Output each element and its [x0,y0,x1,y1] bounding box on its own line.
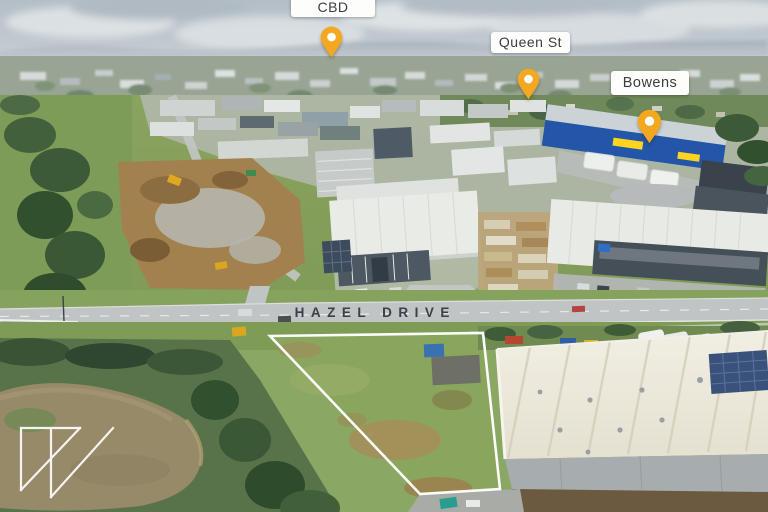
location-pin-icon [637,107,662,146]
label-warragul-line2: CBD [291,0,375,15]
car [572,306,585,312]
left-fields-trees [0,95,132,317]
location-pin-icon [320,24,343,60]
label-warragul-cbd: Warragul CBD [291,0,375,17]
street-name-overlay: HAZEL DRIVE [288,305,456,320]
shipping-container [424,344,444,358]
label-queen-st: Queen St [491,32,570,53]
timber-yard [478,212,558,300]
dirt-strip [512,489,768,512]
agency-logo-watermark [12,424,116,500]
center-warehouse-complex [318,177,483,300]
label-bowens: Bowens [611,71,689,95]
location-pin-icon [517,65,540,103]
car [238,309,252,316]
aerial-photo: Warragul CBD Queen St Bowens HAZEL DRIVE [0,0,768,512]
cargo [505,336,523,344]
concrete-apron [505,454,768,492]
gravel-pad [431,355,480,385]
solar-panels [322,239,352,273]
excavator [232,326,247,336]
light-pole [63,296,64,321]
